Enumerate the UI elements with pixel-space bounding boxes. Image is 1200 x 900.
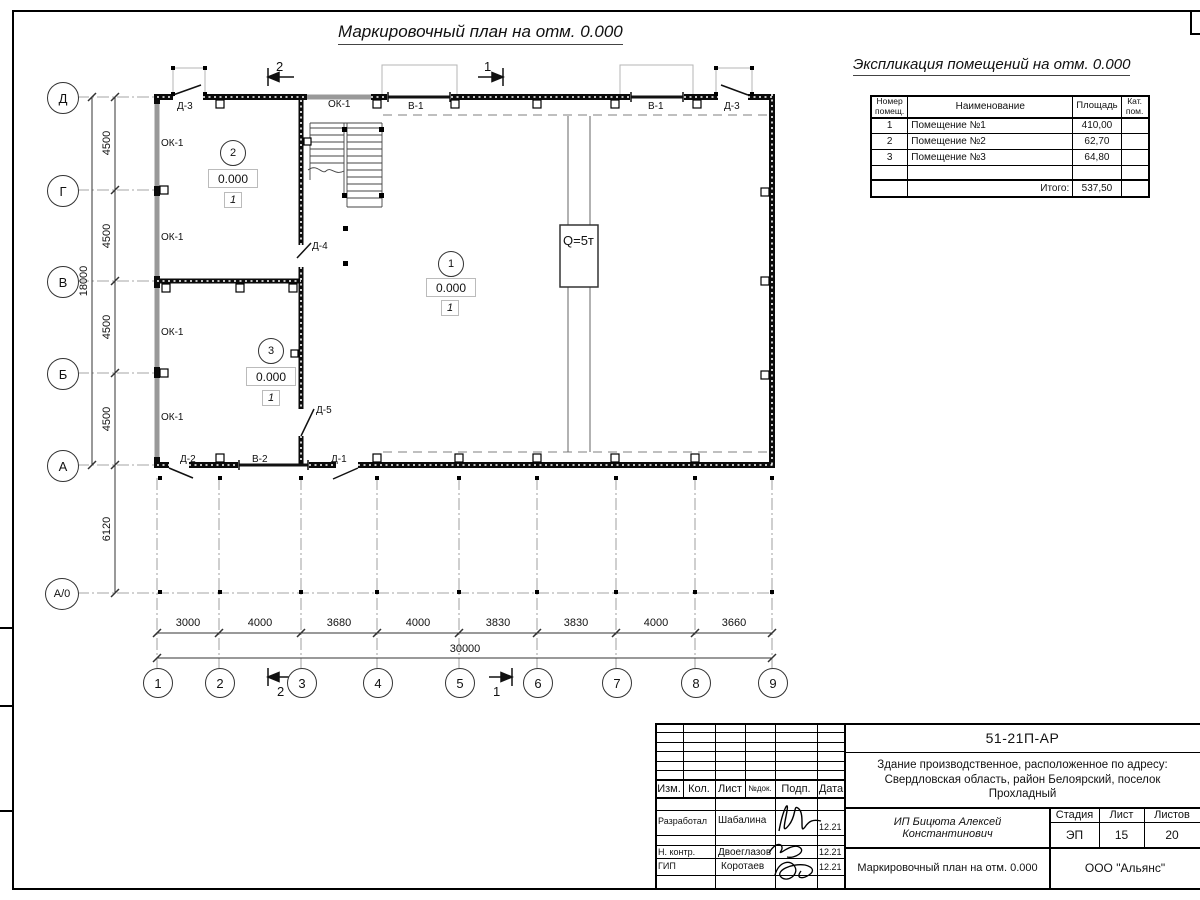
window-label: ОК-1 — [161, 327, 184, 338]
dim-value: 4500 — [97, 123, 117, 163]
signature — [765, 835, 821, 885]
door-label: Д-1 — [331, 454, 347, 465]
porch-outlines — [173, 65, 752, 97]
cell-num: 1 — [871, 118, 908, 134]
dim-value: 4000 — [398, 617, 438, 629]
cell-empty — [1073, 166, 1121, 180]
cell-cat — [1121, 134, 1149, 150]
axis-text: 9 — [769, 676, 776, 691]
window-label: ОК-1 — [161, 232, 184, 243]
section-number: 2 — [276, 59, 283, 74]
explication-header-row: Номер помещ. Наименование Площадь Кат. п… — [871, 96, 1149, 118]
axis-row-label: А/0 — [45, 578, 79, 610]
axis-col-label: 2 — [205, 668, 235, 698]
cell-empty — [871, 180, 908, 197]
tb-sheets-label: Листов — [1144, 808, 1200, 822]
dim-value: 6120 — [97, 509, 117, 549]
tb-col-ndok: №док. — [745, 780, 775, 797]
dim-value: 3830 — [556, 617, 596, 629]
gate-label: В-1 — [408, 101, 424, 112]
crane-capacity-label: Q=5т — [563, 233, 594, 248]
axis-row-label: Д — [47, 82, 79, 114]
room-category-text: 1 — [268, 392, 274, 404]
room-elevation: 0.000 — [426, 278, 476, 297]
axis-row-label: А — [47, 450, 79, 482]
cell-name: Помещение №1 — [908, 118, 1073, 134]
dim-value: 4000 — [636, 617, 676, 629]
room-number: 2 — [220, 140, 246, 166]
dim-value: 4500 — [97, 216, 117, 256]
door-label: Д-3 — [177, 101, 193, 112]
table-total-row: Итого: 537,50 — [871, 180, 1149, 197]
dim-value: 3830 — [478, 617, 518, 629]
table-row: 3 Помещение №3 64,80 — [871, 150, 1149, 166]
cell-empty — [871, 166, 908, 180]
dim-total: 30000 — [440, 643, 490, 655]
axis-text: Б — [59, 367, 68, 382]
room-number-text: 2 — [230, 147, 236, 159]
dim-value: 4000 — [240, 617, 280, 629]
cell-name: Помещение №2 — [908, 134, 1073, 150]
table-row: 2 Помещение №2 62,70 — [871, 134, 1149, 150]
axis-col-label: 5 — [445, 668, 475, 698]
axis-text: 7 — [613, 676, 620, 691]
room-number-text: 3 — [268, 345, 274, 357]
axis-text: А/0 — [54, 588, 71, 600]
axis-text: В — [59, 275, 68, 290]
door-label: Д-3 — [724, 101, 740, 112]
col-header-num: Номер помещ. — [871, 96, 908, 118]
dim-value: 4500 — [97, 399, 117, 439]
room-category: 1 — [441, 300, 459, 316]
cell-area: 410,00 — [1073, 118, 1121, 134]
tb-date: 12.21 — [819, 862, 842, 872]
tb-drawing-name: Маркировочный план на отм. 0.000 — [850, 850, 1045, 886]
cell-area: 62,70 — [1073, 134, 1121, 150]
tb-company: ООО "Альянс" — [1055, 850, 1195, 886]
tb-project-desc: Здание производственное, расположенное п… — [855, 754, 1190, 806]
axis-col-label: 3 — [287, 668, 317, 698]
tb-col-kol: Кол. — [683, 780, 715, 797]
window-label: ОК-1 — [328, 99, 351, 110]
section-number: 1 — [493, 684, 500, 699]
tb-date: 12.21 — [819, 847, 842, 857]
axis-text: 3 — [298, 676, 305, 691]
drawing-sheet: { "sheet": { "title": "Маркировочный пла… — [0, 0, 1200, 900]
dim-value: 3660 — [714, 617, 754, 629]
axis-row-label: Б — [47, 358, 79, 390]
dim-total: 18000 — [74, 256, 94, 306]
gate-label: В-1 — [648, 101, 664, 112]
cell-empty — [1121, 180, 1149, 197]
axis-text: Г — [59, 184, 66, 199]
axis-col-label: 8 — [681, 668, 711, 698]
room-elevation: 0.000 — [246, 367, 296, 386]
total-area: 537,50 — [1073, 180, 1121, 197]
room-number-text: 1 — [448, 258, 454, 270]
dim-value: 3680 — [319, 617, 359, 629]
table-row: 1 Помещение №1 410,00 — [871, 118, 1149, 134]
cell-cat — [1121, 150, 1149, 166]
axis-col-label: 4 — [363, 668, 393, 698]
cell-name: Помещение №3 — [908, 150, 1073, 166]
dim-value: 4500 — [97, 307, 117, 347]
door-label: Д-4 — [312, 241, 328, 252]
cell-area: 64,80 — [1073, 150, 1121, 166]
explication-table: Номер помещ. Наименование Площадь Кат. п… — [870, 95, 1150, 198]
tb-role: Разработал — [658, 816, 707, 826]
axis-col-label: 6 — [523, 668, 553, 698]
tb-client: ИП Бицюта Алексей Константинович — [850, 809, 1045, 847]
section-number: 1 — [484, 59, 491, 74]
axis-text: Д — [59, 91, 68, 106]
tb-sheet-label: Лист — [1099, 808, 1144, 822]
cell-num: 2 — [871, 134, 908, 150]
dimension-lines — [92, 97, 772, 658]
room-elevation-text: 0.000 — [218, 172, 248, 186]
axis-text: 2 — [216, 676, 223, 691]
room-elevation: 0.000 — [208, 169, 258, 188]
column-dots — [158, 66, 774, 594]
tb-role: ГИП — [658, 861, 676, 871]
door-label: Д-5 — [316, 405, 332, 416]
room-number: 1 — [438, 251, 464, 277]
cell-empty — [908, 166, 1073, 180]
total-label: Итого: — [908, 180, 1073, 197]
tb-sheet-value: 15 — [1099, 823, 1144, 847]
axis-col-label: 9 — [758, 668, 788, 698]
section-number: 2 — [277, 684, 284, 699]
page-title: Маркировочный план на отм. 0.000 — [338, 22, 623, 45]
room-elevation-text: 0.000 — [436, 281, 466, 295]
axis-text: 5 — [456, 676, 463, 691]
window-label: ОК-1 — [161, 138, 184, 149]
cell-empty — [1121, 166, 1149, 180]
door-label: Д-2 — [180, 454, 196, 465]
col-header-area: Площадь — [1073, 96, 1121, 118]
room-elevation-text: 0.000 — [256, 370, 286, 384]
axis-text: А — [59, 459, 68, 474]
axis-text: 6 — [534, 676, 541, 691]
axis-col-label: 1 — [143, 668, 173, 698]
tb-sheets-value: 20 — [1144, 823, 1200, 847]
cell-cat — [1121, 118, 1149, 134]
axis-lines — [77, 97, 772, 668]
room-category-text: 1 — [230, 194, 236, 206]
table-row-empty — [871, 166, 1149, 180]
room-category-text: 1 — [447, 302, 453, 314]
tb-col-izm: Изм. — [655, 780, 683, 797]
tb-name: Шабалина — [718, 815, 766, 826]
tb-stage-label: Стадия — [1050, 808, 1099, 822]
axis-text: 8 — [692, 676, 699, 691]
title-block: Изм. Кол. Лист №док. Подп. Дата Разработ… — [655, 723, 1200, 888]
tb-col-list: Лист — [715, 780, 745, 797]
dim-value: 3000 — [168, 617, 208, 629]
axis-row-label: Г — [47, 175, 79, 207]
room-number: 3 — [258, 338, 284, 364]
explication-title: Экспликация помещений на отм. 0.000 — [853, 56, 1130, 76]
cell-num: 3 — [871, 150, 908, 166]
tb-role: Н. контр. — [658, 847, 695, 857]
tb-name: Двоеглазов — [718, 847, 771, 858]
col-header-cat: Кат. пом. — [1121, 96, 1149, 118]
axis-text: 4 — [374, 676, 381, 691]
axis-text: 1 — [154, 676, 161, 691]
tb-doc-number: 51-21П-АР — [845, 723, 1200, 752]
col-header-name: Наименование — [908, 96, 1073, 118]
room-category: 1 — [262, 390, 280, 406]
room-category: 1 — [224, 192, 242, 208]
gate-label: В-2 — [252, 454, 268, 465]
axis-col-label: 7 — [602, 668, 632, 698]
dimension-ticks — [88, 93, 776, 662]
window-label: ОК-1 — [161, 412, 184, 423]
tb-stage-value: ЭП — [1050, 823, 1099, 847]
tb-name: Коротаев — [721, 861, 764, 872]
